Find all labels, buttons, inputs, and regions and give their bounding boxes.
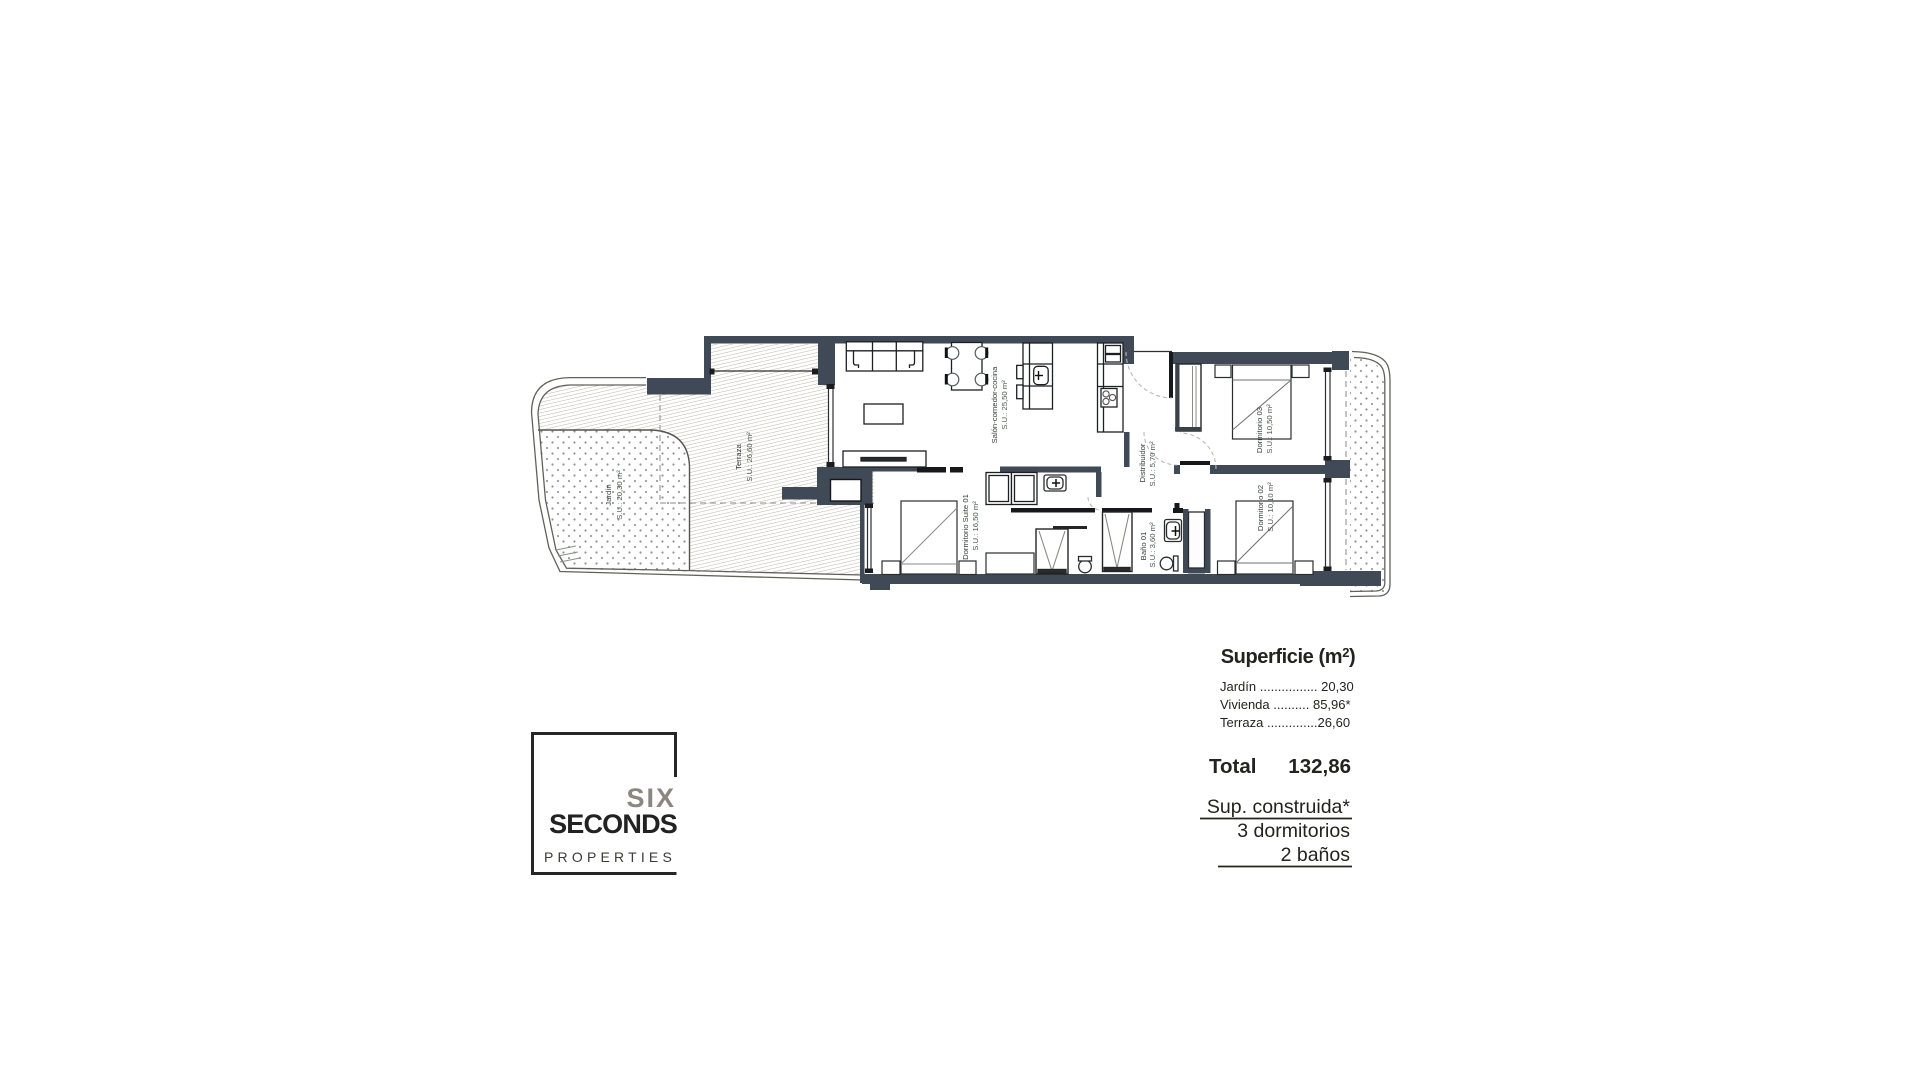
svg-text:S.U.: 10,50 m²: S.U.: 10,50 m² [1265, 404, 1274, 454]
svg-text:PROPERTIES: PROPERTIES [544, 849, 676, 865]
svg-text:Jardín: Jardín [604, 484, 613, 505]
svg-text:Dormitorio 02: Dormitorio 02 [1256, 485, 1265, 531]
svg-text:Dormitorio 03: Dormitorio 03 [1255, 407, 1264, 453]
svg-text:S.U.: 16,50 m²: S.U.: 16,50 m² [971, 501, 980, 551]
svg-text:S.U.: 3,60 m²: S.U.: 3,60 m² [1148, 522, 1157, 568]
svg-text:Sup. construida*: Sup. construida* [1207, 796, 1351, 818]
svg-text:S.U.: 20,30 m²: S.U.: 20,30 m² [615, 470, 624, 520]
svg-text:S.U.: 26,60 m²: S.U.: 26,60 m² [745, 432, 754, 482]
svg-text:132,86: 132,86 [1288, 755, 1351, 778]
svg-text:Terraza ..............26,60: Terraza ..............26,60 [1220, 715, 1350, 730]
svg-text:2 baños: 2 baños [1281, 844, 1351, 866]
svg-text:Total: Total [1209, 755, 1256, 778]
svg-text:Vivienda .......... 85,96*: Vivienda .......... 85,96* [1220, 697, 1351, 712]
svg-text:Superficie (m2): Superficie (m2) [1221, 645, 1356, 668]
svg-text:Terraza: Terraza [734, 443, 743, 469]
svg-text:3 dormitorios: 3 dormitorios [1237, 820, 1350, 842]
svg-text:Baño 01: Baño 01 [1139, 532, 1148, 561]
svg-text:Salón-comedor-cocina: Salón-comedor-cocina [990, 366, 999, 444]
svg-text:Jardín ................ 20,30: Jardín ................ 20,30 [1220, 679, 1354, 694]
svg-text:Distribuidor: Distribuidor [1138, 443, 1147, 482]
svg-text:S.U.: 25,50 m²: S.U.: 25,50 m² [1000, 380, 1009, 430]
svg-text:SECONDS: SECONDS [549, 809, 677, 839]
svg-text:S.U.: 5,70 m²: S.U.: 5,70 m² [1148, 441, 1157, 487]
svg-text:S.U.: 10,10 m²: S.U.: 10,10 m² [1266, 482, 1275, 532]
svg-text:Dormitorio Suite 01: Dormitorio Suite 01 [961, 494, 970, 560]
